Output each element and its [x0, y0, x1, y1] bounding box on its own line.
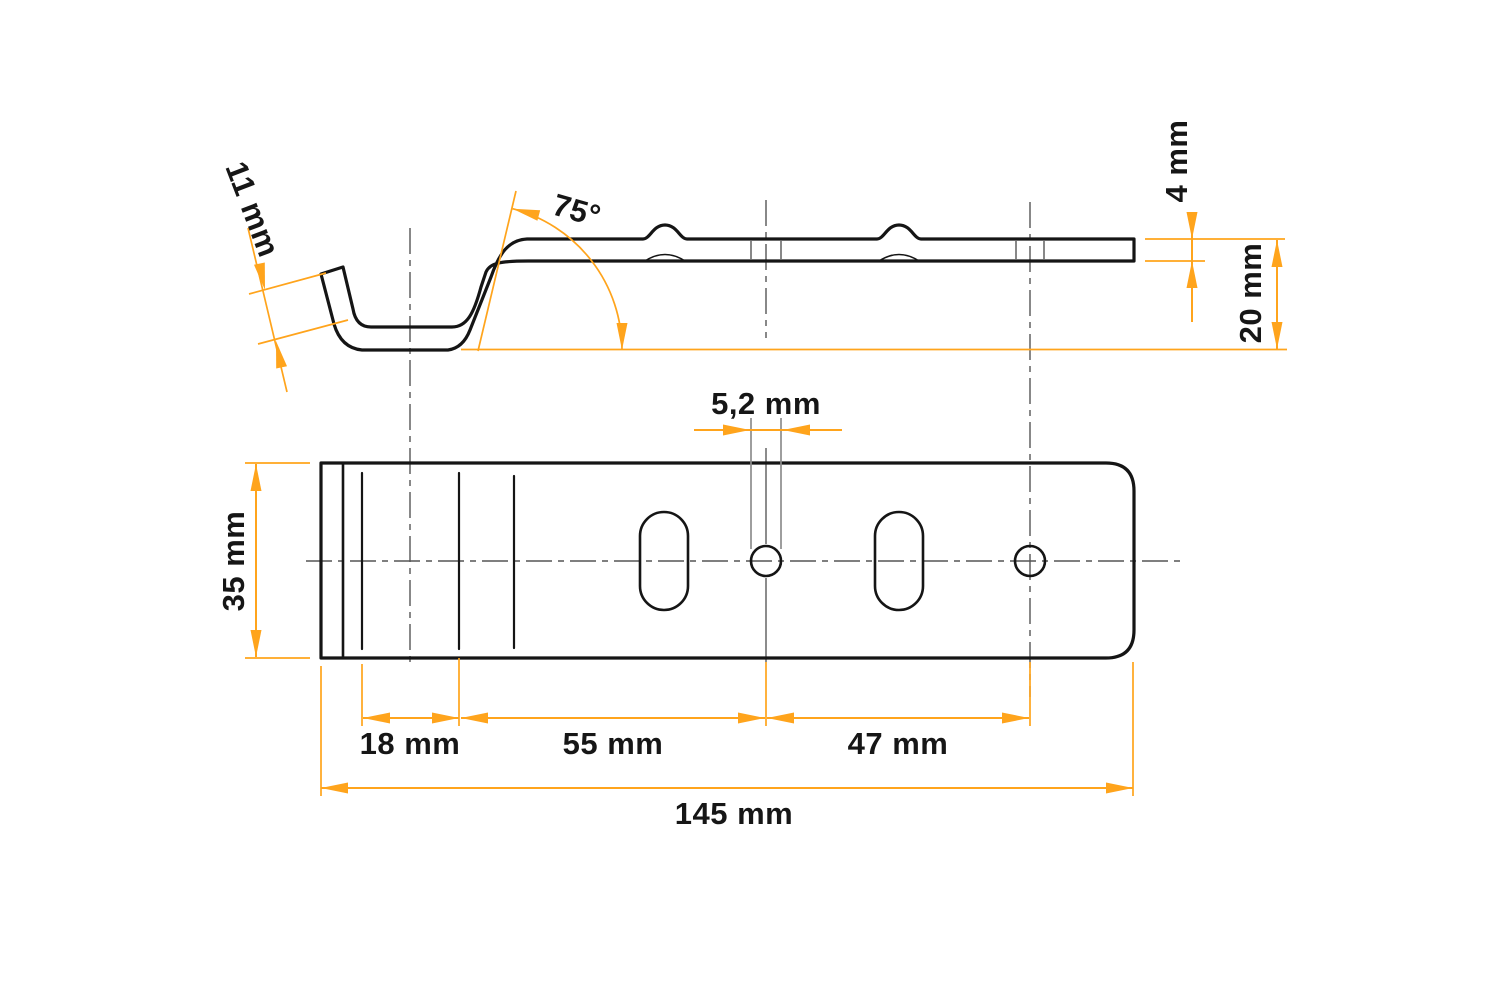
- arrowhead: [1106, 783, 1133, 794]
- bracket-profile: [321, 225, 1134, 350]
- arrowhead: [738, 713, 765, 724]
- arrowhead: [783, 425, 810, 436]
- arrowhead: [723, 425, 750, 436]
- label-hook-height: 20 mm: [1233, 243, 1268, 344]
- label-hole-to-hole: 47 mm: [848, 726, 949, 761]
- bracket-drawing: 11 mm 75° 4 mm 20 mm 5,2 mm 35 mm 18 mm …: [0, 0, 1500, 1000]
- label-material-thickness: 4 mm: [1159, 120, 1194, 203]
- label-lip-length: 11 mm: [218, 157, 286, 262]
- arrowhead: [1187, 212, 1198, 239]
- label-hole-diameter: 5,2 mm: [711, 386, 821, 421]
- arrowhead: [363, 713, 390, 724]
- label-plate-width: 35 mm: [216, 511, 251, 612]
- arrowhead: [321, 783, 348, 794]
- arrowhead: [276, 341, 287, 369]
- technical-drawing-canvas: 11 mm 75° 4 mm 20 mm 5,2 mm 35 mm 18 mm …: [0, 0, 1500, 1000]
- arrowhead: [513, 209, 541, 221]
- dim-plate-width: [245, 463, 310, 658]
- arrowhead: [1187, 261, 1198, 288]
- dim-hook-height: [1272, 240, 1283, 349]
- arrowhead: [251, 630, 262, 657]
- label-bend-to-hole: 55 mm: [563, 726, 664, 761]
- arrowhead: [432, 713, 459, 724]
- label-overall-length: 145 mm: [675, 796, 793, 831]
- dimension-labels: 11 mm 75° 4 mm 20 mm 5,2 mm 35 mm 18 mm …: [216, 120, 1268, 831]
- arrowhead: [1272, 322, 1283, 349]
- side-view: [321, 225, 1134, 350]
- centerlines: [306, 200, 1180, 697]
- arrowhead: [461, 713, 488, 724]
- arrowhead: [1002, 713, 1029, 724]
- arrowhead: [617, 323, 628, 350]
- arrowhead: [1272, 240, 1283, 267]
- dim-chain-bottom: [362, 658, 1030, 726]
- dim-hole-diameter: [694, 418, 842, 549]
- label-first-bend-length: 18 mm: [360, 726, 461, 761]
- arrowhead: [254, 263, 265, 291]
- label-bend-angle: 75°: [549, 187, 605, 234]
- arrowhead: [767, 713, 794, 724]
- arrowhead: [251, 464, 262, 491]
